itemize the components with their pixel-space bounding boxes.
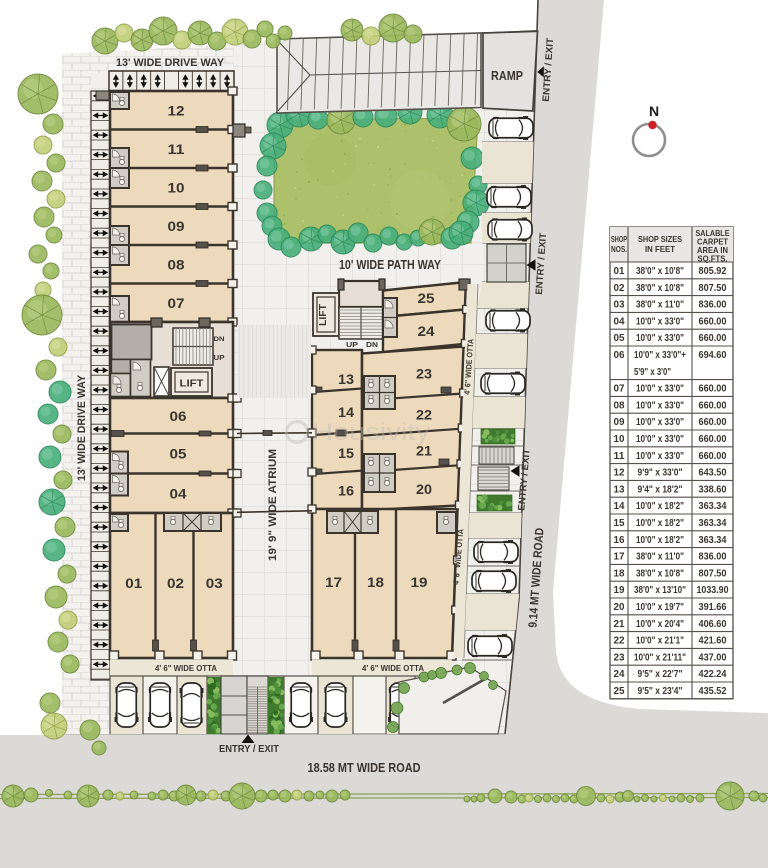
svg-text:643.50: 643.50 bbox=[699, 467, 727, 479]
svg-text:23: 23 bbox=[614, 651, 625, 663]
svg-text:07: 07 bbox=[168, 295, 185, 311]
svg-text:4' 6" WIDE OTTA: 4' 6" WIDE OTTA bbox=[362, 663, 424, 673]
svg-text:363.34: 363.34 bbox=[699, 517, 727, 529]
svg-text:SHOP: SHOP bbox=[611, 234, 627, 244]
svg-text:10: 10 bbox=[614, 433, 625, 445]
svg-text:660.00: 660.00 bbox=[699, 315, 727, 327]
svg-text:13: 13 bbox=[614, 483, 625, 495]
svg-text:21: 21 bbox=[614, 618, 625, 630]
svg-text:ENTRY / EXIT: ENTRY / EXIT bbox=[219, 744, 279, 755]
svg-text:363.34: 363.34 bbox=[699, 534, 727, 546]
svg-text:38'0" x 10'8": 38'0" x 10'8" bbox=[636, 567, 684, 579]
svg-text:Housivity: Housivity bbox=[312, 419, 430, 446]
svg-text:10'0" x 18'2": 10'0" x 18'2" bbox=[636, 500, 684, 512]
svg-text:10'0" x 19'7": 10'0" x 19'7" bbox=[636, 601, 684, 613]
svg-text:UP: UP bbox=[346, 342, 358, 349]
svg-text:4' 6" WIDE OTTA: 4' 6" WIDE OTTA bbox=[155, 663, 217, 673]
svg-text:10: 10 bbox=[168, 179, 185, 195]
svg-text:DN: DN bbox=[214, 336, 225, 343]
svg-text:RAMP: RAMP bbox=[491, 69, 523, 83]
svg-text:07: 07 bbox=[614, 383, 625, 395]
svg-text:03: 03 bbox=[206, 575, 223, 591]
svg-text:38'0" x 10'8": 38'0" x 10'8" bbox=[636, 265, 684, 277]
svg-text:10'0" x 18'2": 10'0" x 18'2" bbox=[636, 517, 684, 529]
svg-text:406.60: 406.60 bbox=[699, 618, 727, 630]
svg-text:17: 17 bbox=[614, 551, 625, 563]
svg-text:16: 16 bbox=[614, 534, 625, 546]
svg-text:38'0" x 11'0": 38'0" x 11'0" bbox=[636, 551, 684, 563]
svg-text:13' WIDE DRIVE WAY: 13' WIDE DRIVE WAY bbox=[76, 374, 88, 481]
svg-text:10'0" x 21'11": 10'0" x 21'11" bbox=[634, 651, 686, 663]
svg-text:14: 14 bbox=[614, 500, 625, 512]
svg-text:03: 03 bbox=[614, 299, 625, 311]
svg-text:10'0" x 33'0": 10'0" x 33'0" bbox=[636, 450, 684, 462]
svg-text:09: 09 bbox=[168, 218, 185, 234]
svg-text:10'0" x 33'0"+: 10'0" x 33'0"+ bbox=[634, 349, 686, 361]
svg-text:20: 20 bbox=[416, 482, 432, 497]
svg-text:807.50: 807.50 bbox=[699, 282, 727, 294]
svg-text:17: 17 bbox=[325, 574, 342, 590]
svg-text:18.58 MT WIDE ROAD: 18.58 MT WIDE ROAD bbox=[308, 761, 421, 775]
svg-text:13: 13 bbox=[338, 372, 355, 387]
svg-text:437.00: 437.00 bbox=[699, 651, 727, 663]
svg-text:24: 24 bbox=[614, 668, 625, 680]
svg-text:18: 18 bbox=[367, 574, 384, 590]
svg-text:19: 19 bbox=[614, 584, 625, 596]
svg-text:LIFT: LIFT bbox=[180, 378, 205, 390]
svg-text:422.24: 422.24 bbox=[699, 668, 727, 680]
svg-text:694.60: 694.60 bbox=[699, 349, 727, 361]
svg-text:DN: DN bbox=[366, 342, 378, 349]
svg-text:660.00: 660.00 bbox=[699, 383, 727, 395]
svg-text:38'0" x 13'10": 38'0" x 13'10" bbox=[634, 584, 686, 596]
svg-text:IN FEET: IN FEET bbox=[645, 244, 676, 254]
svg-text:10'0" x 33'0": 10'0" x 33'0" bbox=[636, 433, 684, 445]
svg-text:15: 15 bbox=[338, 446, 355, 461]
svg-text:10'0" x 33'0": 10'0" x 33'0" bbox=[636, 383, 684, 395]
svg-text:13' WIDE DRIVE WAY: 13' WIDE DRIVE WAY bbox=[116, 57, 225, 69]
svg-text:UP: UP bbox=[214, 355, 225, 362]
svg-text:15: 15 bbox=[614, 517, 625, 529]
svg-text:10'0" x 33'0": 10'0" x 33'0" bbox=[636, 315, 684, 327]
svg-text:10'0" x 18'2": 10'0" x 18'2" bbox=[636, 534, 684, 546]
svg-text:12: 12 bbox=[168, 102, 185, 118]
svg-text:02: 02 bbox=[167, 575, 184, 591]
svg-text:25: 25 bbox=[418, 290, 435, 306]
svg-text:5'9" x 3'0": 5'9" x 3'0" bbox=[634, 366, 671, 378]
svg-text:08: 08 bbox=[168, 256, 185, 272]
svg-text:391.66: 391.66 bbox=[699, 601, 727, 613]
svg-text:10'0" x 33'0": 10'0" x 33'0" bbox=[636, 416, 684, 428]
svg-text:660.00: 660.00 bbox=[699, 416, 727, 428]
svg-text:836.00: 836.00 bbox=[699, 551, 727, 563]
svg-text:9'5" x 22'7": 9'5" x 22'7" bbox=[638, 668, 683, 680]
svg-text:14: 14 bbox=[338, 405, 355, 420]
svg-text:807.50: 807.50 bbox=[699, 567, 727, 579]
svg-text:23: 23 bbox=[416, 367, 433, 382]
svg-text:NOS.: NOS. bbox=[611, 244, 627, 254]
svg-text:22: 22 bbox=[614, 635, 625, 647]
svg-text:10'0" x 20'4": 10'0" x 20'4" bbox=[636, 618, 684, 630]
svg-text:04: 04 bbox=[614, 315, 625, 327]
svg-text:SHOP SIZES: SHOP SIZES bbox=[638, 234, 682, 244]
svg-text:01: 01 bbox=[125, 575, 142, 591]
svg-text:435.52: 435.52 bbox=[699, 685, 727, 697]
svg-text:04: 04 bbox=[170, 485, 187, 501]
svg-text:363.34: 363.34 bbox=[699, 500, 727, 512]
svg-text:805.92: 805.92 bbox=[699, 265, 727, 277]
svg-text:12: 12 bbox=[614, 467, 625, 479]
svg-text:19' 9" WIDE ATRIUM: 19' 9" WIDE ATRIUM bbox=[267, 449, 279, 561]
svg-text:660.00: 660.00 bbox=[699, 450, 727, 462]
svg-text:338.60: 338.60 bbox=[699, 483, 727, 495]
svg-text:08: 08 bbox=[614, 399, 625, 411]
svg-text:836.00: 836.00 bbox=[699, 299, 727, 311]
svg-text:38'0" x 11'0": 38'0" x 11'0" bbox=[636, 299, 684, 311]
svg-text:10' WIDE PATH WAY: 10' WIDE PATH WAY bbox=[339, 258, 442, 272]
svg-text:11: 11 bbox=[168, 141, 185, 157]
svg-text:06: 06 bbox=[614, 349, 625, 361]
svg-text:16: 16 bbox=[338, 484, 355, 499]
svg-text:N: N bbox=[649, 103, 659, 119]
svg-text:10'0" x 21'1": 10'0" x 21'1" bbox=[636, 635, 684, 647]
svg-text:01: 01 bbox=[614, 265, 625, 277]
svg-text:1033.90: 1033.90 bbox=[697, 584, 729, 596]
svg-text:421.60: 421.60 bbox=[699, 635, 727, 647]
svg-text:660.00: 660.00 bbox=[699, 332, 727, 344]
svg-text:9'4" x 18'2": 9'4" x 18'2" bbox=[638, 483, 683, 495]
svg-text:06: 06 bbox=[170, 408, 187, 424]
svg-text:09: 09 bbox=[614, 416, 625, 428]
svg-text:LIFT: LIFT bbox=[318, 304, 329, 326]
svg-text:20: 20 bbox=[614, 601, 625, 613]
svg-text:24: 24 bbox=[418, 323, 435, 339]
svg-text:25: 25 bbox=[614, 685, 625, 697]
svg-text:18: 18 bbox=[614, 567, 625, 579]
svg-text:9'5" x 23'4": 9'5" x 23'4" bbox=[638, 685, 683, 697]
svg-text:19: 19 bbox=[411, 574, 428, 590]
svg-text:05: 05 bbox=[614, 332, 625, 344]
svg-text:660.00: 660.00 bbox=[699, 399, 727, 411]
svg-text:02: 02 bbox=[614, 282, 625, 294]
svg-text:10'0" x 33'0": 10'0" x 33'0" bbox=[636, 399, 684, 411]
svg-text:05: 05 bbox=[170, 446, 187, 462]
svg-text:11: 11 bbox=[614, 450, 625, 462]
svg-text:660.00: 660.00 bbox=[699, 433, 727, 445]
svg-text:38'0" x 10'8": 38'0" x 10'8" bbox=[636, 282, 684, 294]
svg-text:SQ.FTS.: SQ.FTS. bbox=[698, 254, 728, 264]
svg-text:9'9" x 33'0": 9'9" x 33'0" bbox=[638, 467, 683, 479]
svg-text:10'0" x 33'0": 10'0" x 33'0" bbox=[636, 332, 684, 344]
